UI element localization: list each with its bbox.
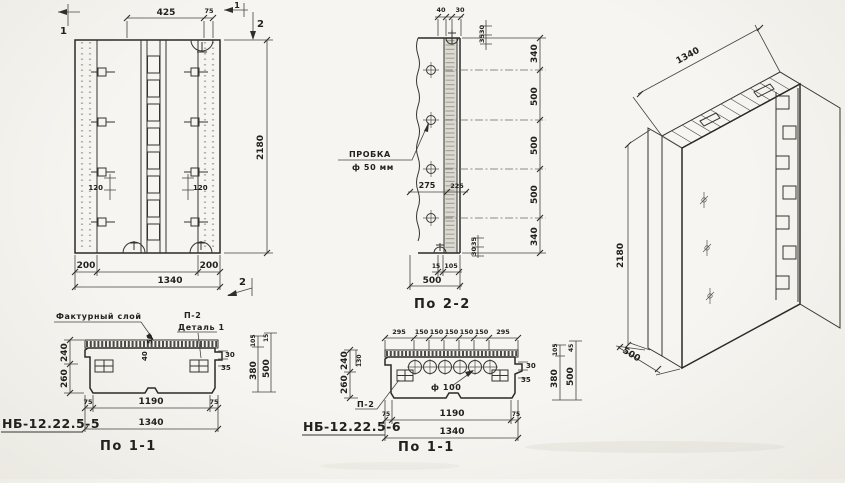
- scan-smudge: [320, 462, 460, 470]
- chain-105-label-b: 105: [552, 343, 559, 356]
- dim-1340-label-a: 1340: [138, 418, 163, 428]
- chain-380-label-b: 380: [550, 369, 560, 388]
- dim-105-label: 105: [444, 262, 458, 270]
- factur-leader: [54, 322, 153, 339]
- plug-label-line2: ф 50 мм: [352, 163, 394, 172]
- iso-dim-2180-label: 2180: [616, 243, 626, 268]
- isometric-view: 1340 2180 500: [616, 25, 840, 375]
- panel-mark-a: НБ-12.22.5-5: [2, 416, 100, 431]
- iso-dim-1340-label: 1340: [675, 46, 702, 67]
- dim-30-label: 30: [225, 351, 235, 359]
- dim-75-left-label: 75: [83, 398, 93, 406]
- dim-75-right-label-b: 75: [512, 411, 520, 418]
- dim-1340-label: 1340: [157, 276, 182, 286]
- detail-callout: П-2 Деталь 1: [177, 311, 225, 358]
- iso-lifting-slot-2: [754, 84, 774, 97]
- key-strip-rungs: [148, 56, 160, 240]
- dim-130-label: 130: [356, 354, 363, 367]
- chain-500-label: 500: [262, 359, 272, 378]
- section-1-1-a-view: Фактурный слой П-2 Деталь 1 50 40 30 35 …: [1, 311, 277, 454]
- section-flag-2-top: 2: [250, 12, 264, 40]
- detail-label: Деталь 1: [178, 323, 225, 332]
- panel-mark-b: НБ-12.22.5-6: [303, 419, 401, 434]
- flag-1-label: 1: [60, 26, 67, 37]
- chain-380-label: 380: [249, 361, 259, 380]
- dim-35-label-b: 35: [521, 376, 531, 384]
- top-150-5: 150: [475, 328, 489, 336]
- iso-end-face: [800, 84, 840, 328]
- dim-275-label: 275: [419, 181, 436, 190]
- scan-smudge: [525, 441, 785, 453]
- small-top-30: 30: [478, 24, 486, 34]
- iso-lifting-slot-1: [700, 113, 720, 126]
- dim-2180-label: 2180: [256, 135, 266, 160]
- body-outline: [85, 348, 222, 393]
- dim-240-label-b: 240: [340, 351, 350, 370]
- iso-key-strip-lines: [776, 88, 798, 302]
- dim-75-label: 75: [204, 7, 214, 15]
- section-2-2-view: ПРОБКА ф 50 мм 40 30 30 35 340 500 500 5…: [338, 6, 546, 312]
- dim-35-label: 35: [221, 364, 231, 372]
- factur-callout: Фактурный слой: [54, 312, 154, 341]
- dim-120-lines: [104, 174, 194, 200]
- chain-500-label-b: 500: [566, 367, 576, 386]
- flag-2-top-label: 2: [257, 19, 264, 30]
- top-295-r: 295: [496, 328, 510, 336]
- top-pin: [446, 30, 458, 44]
- dim-425-line: [127, 18, 213, 38]
- dim-425-label: 425: [157, 8, 176, 18]
- chain-340-top: 340: [530, 44, 540, 63]
- top-150-2: 150: [430, 328, 444, 336]
- iso-front-face: [682, 84, 800, 368]
- section-flag-1-right: 1: [224, 1, 248, 17]
- iso-top-hatch: [662, 78, 790, 148]
- flag-2-bottom-label: 2: [239, 277, 246, 288]
- iso-key-rungs: [776, 96, 796, 289]
- section-1-1-b-view: 295 150 150 150 150 150 295 ф 100 П-2 24…: [302, 328, 582, 455]
- dim-50-label: 50: [146, 334, 154, 344]
- iso-fin-face: [648, 128, 662, 356]
- section-flag-2-bottom: 2: [227, 277, 252, 296]
- bottom-lifting-recess-right: [190, 241, 212, 253]
- plug-holes: [423, 62, 439, 226]
- flag-1-right-label: 1: [234, 1, 240, 10]
- void-circles: [407, 359, 498, 375]
- small-bottom-35: 35: [470, 236, 478, 246]
- anchor-hooks-left: [91, 68, 115, 226]
- section-1-1-a-caption: По 1-1: [100, 439, 157, 454]
- p2-label-b: П-2: [357, 400, 374, 409]
- dim-500-label: 500: [423, 276, 442, 286]
- dim-200-left-label: 200: [77, 261, 96, 271]
- dim-1340-label-b: 1340: [439, 427, 464, 437]
- iso-recess-face: [662, 136, 682, 368]
- top-lifting-recess: [191, 40, 213, 52]
- section-flag-1-left: 1: [58, 4, 80, 37]
- dim-240-label: 240: [60, 343, 70, 362]
- front-elevation-view: 120 120 425 75 1 1 2 2 2180 200: [58, 1, 273, 296]
- chain-500-a: 500: [530, 87, 540, 106]
- dim-260-label-b: 260: [340, 375, 350, 394]
- dim-40-label: 40: [436, 6, 446, 14]
- dim-120-right-label: 120: [193, 184, 208, 192]
- dim-30-top-label: 30: [455, 6, 465, 14]
- section-2-2-caption: По 2-2: [414, 297, 471, 312]
- dim-260-label: 260: [60, 369, 70, 388]
- p2-label: П-2: [184, 311, 201, 320]
- dim-120-left-label: 120: [88, 184, 103, 192]
- rib-broken-edge: [417, 38, 420, 241]
- dim-1190-label: 1190: [138, 397, 163, 407]
- chain-500-c: 500: [530, 185, 540, 204]
- dim-200-right-label: 200: [200, 261, 219, 271]
- chain-500-b: 500: [530, 136, 540, 155]
- chain-15-label: 15: [263, 334, 270, 342]
- embedded-channel-left: [95, 360, 113, 372]
- iso-dim-1340-line: [633, 25, 780, 136]
- plug-callout: ПРОБКА ф 50 мм: [338, 122, 429, 172]
- iso-dim-1340-ticks: [637, 25, 763, 97]
- section-1-1-b-caption: По 1-1: [398, 440, 455, 455]
- dim-30-label-b: 30: [526, 362, 536, 370]
- top-150-3: 150: [445, 328, 459, 336]
- iso-phi-marks: [700, 192, 714, 304]
- bottom-lifting-recess-left: [123, 241, 145, 253]
- small-bottom-30: 30: [470, 246, 478, 256]
- iso-dim-2180-line: [628, 130, 650, 350]
- plug-leader-arrow: [424, 122, 429, 132]
- dim-1190-label-b: 1190: [439, 409, 464, 419]
- factur-label: Фактурный слой: [56, 312, 142, 321]
- drawing-canvas: 120 120 425 75 1 1 2 2 2180 200: [0, 0, 845, 479]
- dim-75-right-label: 75: [209, 398, 219, 406]
- plug-label-line1: ПРОБКА: [349, 150, 391, 159]
- phi-100-callout: ф 100: [431, 370, 474, 392]
- chain-105-label: 105: [250, 334, 257, 347]
- top-chain-lines-b: [385, 338, 518, 350]
- top-295-l: 295: [392, 328, 406, 336]
- key-strip-lines: [141, 40, 166, 253]
- top-150-1: 150: [415, 328, 429, 336]
- chain-45-label: 45: [568, 344, 575, 352]
- dim-225-label: 225: [450, 182, 464, 190]
- dim-75-left-label-b: 75: [382, 411, 390, 418]
- phi-100-label: ф 100: [431, 383, 461, 392]
- chain-340-bot: 340: [530, 227, 540, 246]
- dim-15-label: 15: [432, 263, 440, 270]
- dim-40-label: 40: [141, 351, 149, 361]
- top-150-4: 150: [460, 328, 474, 336]
- embedded-channel-right: [190, 360, 208, 372]
